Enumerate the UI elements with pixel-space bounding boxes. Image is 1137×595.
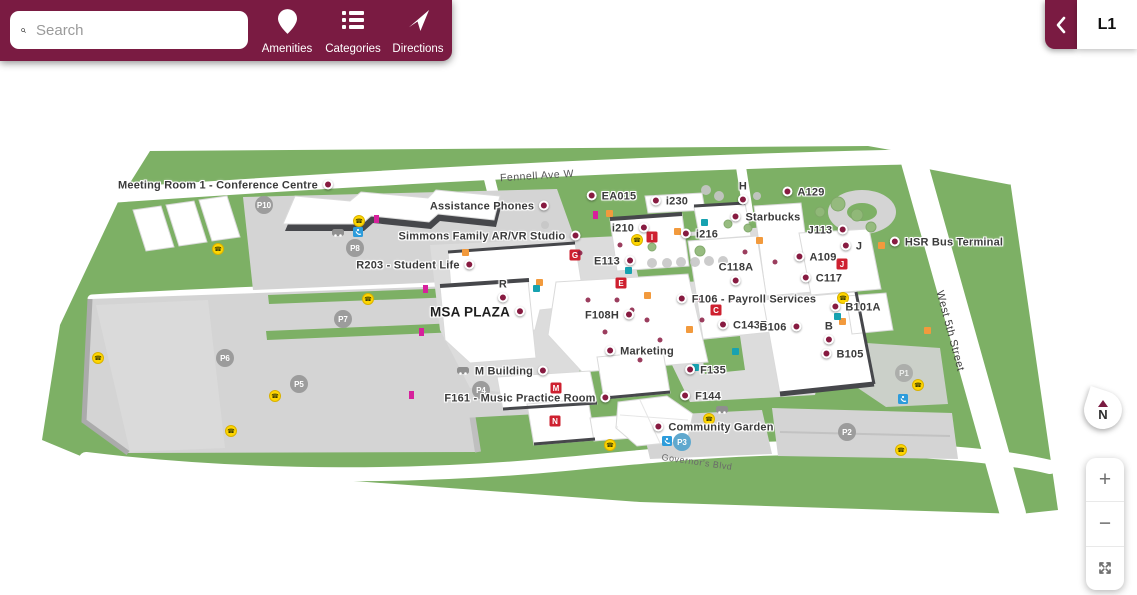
categories-button[interactable]: Categories — [320, 9, 386, 55]
map-pin-icon — [278, 9, 297, 34]
map-label-community-garden[interactable]: Community Garden — [648, 423, 773, 434]
zoom-out-button[interactable]: − — [1086, 502, 1124, 546]
svg-text:☎: ☎ — [94, 355, 102, 362]
svg-text:N: N — [552, 417, 558, 426]
map-label-r203-student-life[interactable]: R203 - Student Life — [356, 261, 479, 272]
map-label-m-building[interactable]: M Building — [475, 367, 553, 378]
map-label-i230[interactable]: i230 — [646, 197, 688, 208]
map-label-f108h[interactable]: F108H — [585, 311, 639, 322]
map-label-f144[interactable]: F144 — [675, 392, 721, 403]
svg-text:G: G — [572, 251, 578, 260]
building-b-east — [846, 293, 893, 334]
map-label-a129[interactable]: A129 — [777, 188, 824, 199]
categories-label: Categories — [325, 44, 381, 56]
map-viewport[interactable]: P10 P8 P7 P6 P5 P4 P3 P2 P1 G I E J C M … — [0, 0, 1137, 595]
svg-text:☎: ☎ — [271, 393, 279, 400]
map-label-b101a[interactable]: B101A — [825, 303, 880, 314]
map-label-b[interactable]: B — [825, 322, 833, 333]
svg-text:P10: P10 — [257, 201, 272, 210]
directions-label: Directions — [392, 44, 443, 56]
navigation-arrow-icon — [407, 9, 430, 32]
svg-text:☎: ☎ — [914, 382, 922, 389]
map-label-i210[interactable]: i210 — [612, 224, 654, 235]
map-label-r[interactable]: R — [499, 280, 507, 291]
search-icon — [21, 22, 26, 39]
current-level[interactable]: L1 — [1077, 0, 1137, 49]
map-label-b106[interactable]: B106 — [759, 323, 806, 334]
svg-text:P3: P3 — [677, 438, 687, 447]
zoom-in-button[interactable]: + — [1086, 458, 1124, 502]
map-label-i216[interactable]: i216 — [676, 230, 718, 241]
list-icon — [342, 9, 364, 31]
map-label-f135[interactable]: F135 — [680, 366, 726, 377]
map-label-hsr-bus-terminal[interactable]: HSR Bus Terminal — [885, 238, 1003, 249]
level-collapse-button[interactable] — [1045, 0, 1077, 49]
map-label-msa-plaza[interactable]: MSA PLAZA — [430, 305, 530, 319]
map-label-j113[interactable]: J113 — [808, 226, 853, 237]
svg-text:C: C — [713, 306, 719, 315]
search-input[interactable] — [34, 21, 237, 40]
amenities-button[interactable]: Amenities — [254, 9, 320, 55]
fullscreen-button[interactable] — [1086, 547, 1124, 590]
map-label-simmons-arvr[interactable]: Simmons Family AR/VR Studio — [399, 232, 586, 243]
svg-text:☎: ☎ — [897, 447, 905, 454]
svg-text:P8: P8 — [350, 244, 360, 253]
svg-text:☎: ☎ — [364, 296, 372, 303]
svg-text:☎: ☎ — [606, 442, 614, 449]
svg-text:☎: ☎ — [214, 246, 222, 253]
svg-text:P6: P6 — [220, 354, 230, 363]
map-label-marketing[interactable]: Marketing — [600, 347, 674, 358]
map-label-starbucks[interactable]: Starbucks — [726, 213, 801, 224]
svg-text:☎: ☎ — [355, 218, 363, 225]
compass-needle-icon — [1098, 400, 1108, 407]
map-zoom-controls: + − — [1086, 458, 1124, 590]
map-label-c118a[interactable]: C118A — [719, 263, 754, 274]
svg-text:P2: P2 — [842, 428, 852, 437]
svg-text:E: E — [618, 279, 624, 288]
svg-text:☎: ☎ — [227, 428, 235, 435]
svg-text:P5: P5 — [294, 380, 304, 389]
directions-button[interactable]: Directions — [385, 9, 451, 55]
svg-text:J: J — [840, 260, 844, 269]
level-selector: L1 — [1045, 0, 1137, 49]
compass-north-label: N — [1098, 408, 1107, 421]
map-label-f106-payroll[interactable]: F106 - Payroll Services — [672, 295, 816, 306]
map-label-h[interactable]: H — [739, 182, 747, 193]
map-label-ea015[interactable]: EA015 — [582, 192, 637, 203]
map-label-assistance-phones[interactable]: Assistance Phones — [430, 202, 554, 213]
map-label-f161-music[interactable]: F161 - Music Practice Room — [444, 394, 615, 405]
map-label-a109[interactable]: A109 — [789, 253, 836, 264]
map-label-j[interactable]: J — [836, 242, 862, 253]
svg-text:P1: P1 — [899, 369, 909, 378]
map-label-meeting-room[interactable]: Meeting Room 1 - Conference Centre — [118, 181, 338, 192]
map-label-c117[interactable]: C117 — [796, 274, 843, 285]
compass-button[interactable]: N — [1079, 386, 1127, 434]
amenities-label: Amenities — [262, 44, 313, 56]
campus-map-canvas[interactable]: P10 P8 P7 P6 P5 P4 P3 P2 P1 G I E J C M … — [0, 0, 1137, 595]
expand-icon — [1097, 560, 1113, 576]
chevron-left-icon — [1055, 16, 1067, 34]
toolbar: Amenities Categories Directions — [0, 0, 452, 61]
svg-text:☎: ☎ — [633, 237, 641, 244]
map-label-b105[interactable]: B105 — [816, 350, 863, 361]
search-bar[interactable] — [10, 11, 248, 49]
svg-text:P7: P7 — [338, 315, 348, 324]
map-label-e113[interactable]: E113 — [594, 257, 640, 268]
